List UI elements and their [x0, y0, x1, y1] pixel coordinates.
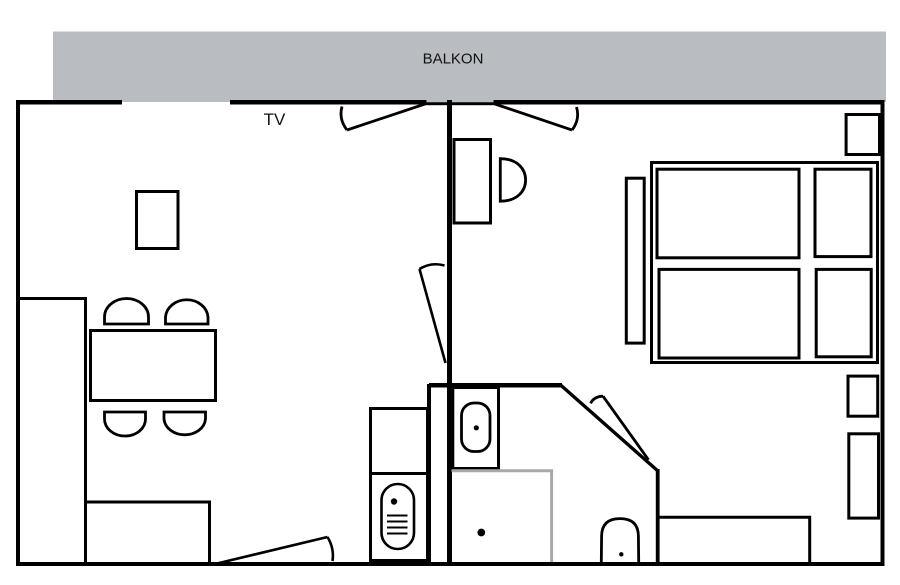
svg-text:BALKON: BALKON [423, 51, 484, 68]
svg-text:TV: TV [264, 110, 286, 129]
